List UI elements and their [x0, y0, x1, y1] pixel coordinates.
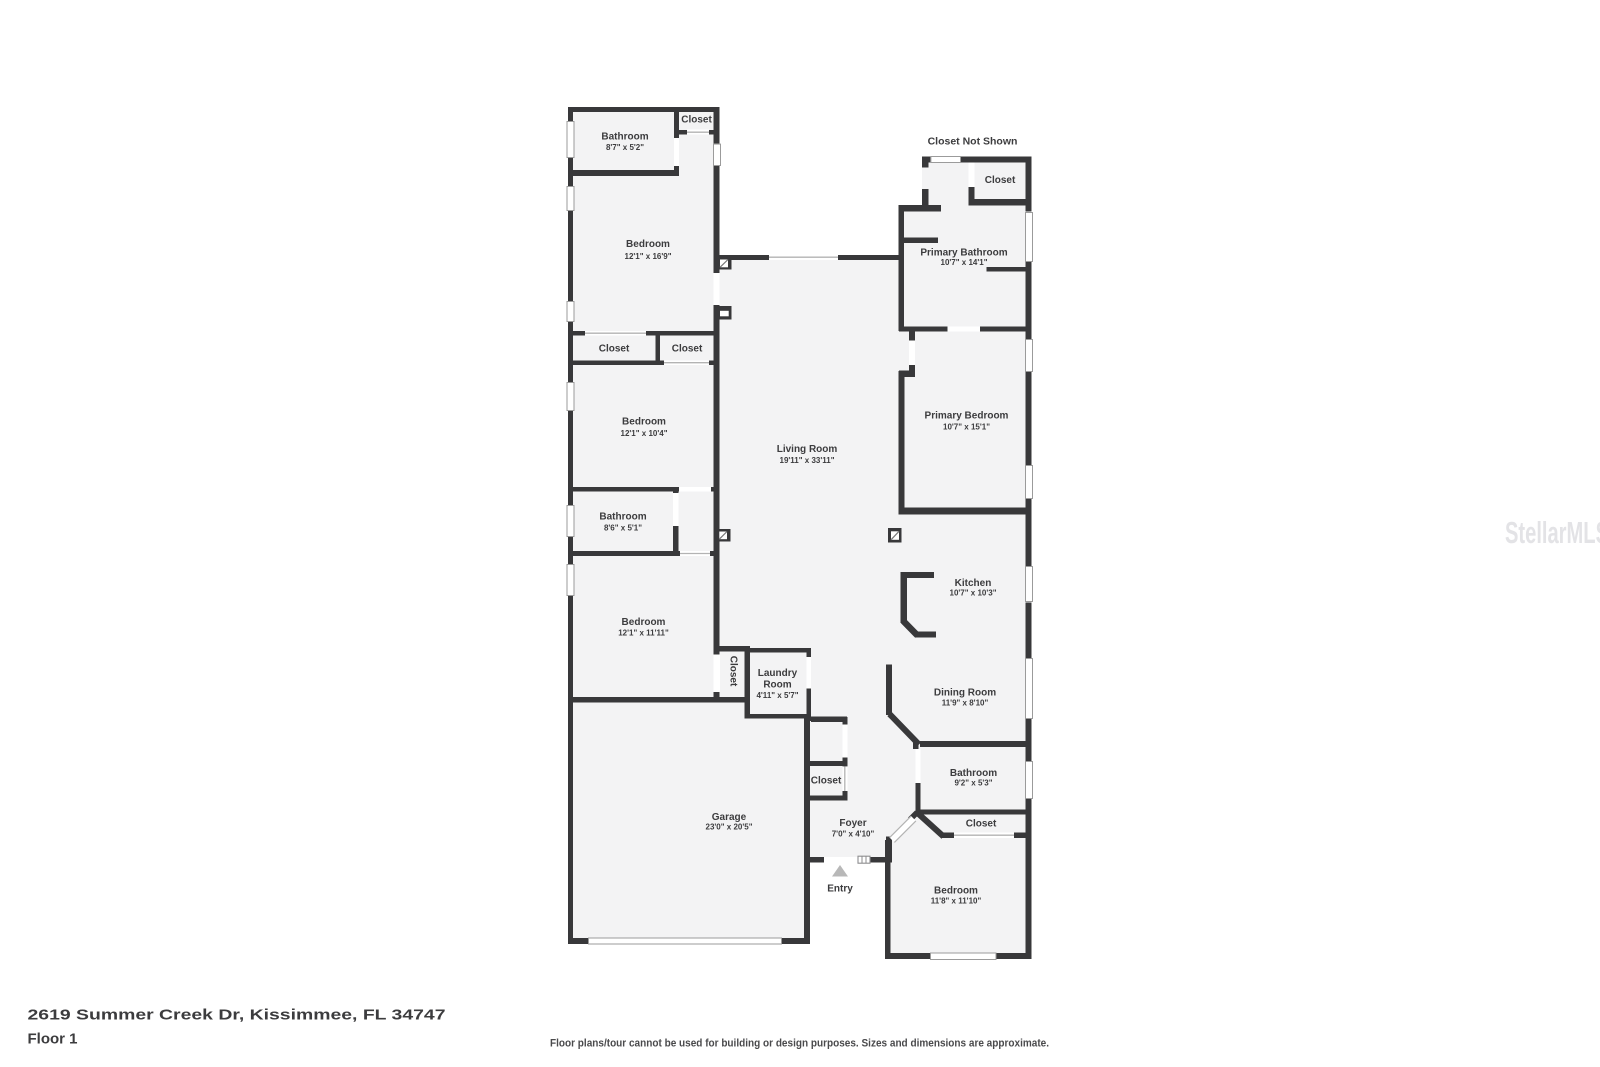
svg-text:Foyer: Foyer: [839, 818, 866, 829]
svg-text:Bathroom: Bathroom: [599, 512, 646, 523]
svg-text:Garage: Garage: [712, 812, 747, 823]
svg-text:Closet Not Shown: Closet Not Shown: [928, 136, 1018, 148]
svg-text:Kitchen: Kitchen: [955, 578, 992, 589]
svg-text:9'2" x 5'3": 9'2" x 5'3": [954, 779, 992, 788]
svg-text:Closet: Closet: [966, 819, 997, 830]
svg-text:Closet: Closet: [728, 656, 739, 687]
svg-text:Bedroom: Bedroom: [622, 617, 666, 628]
svg-text:Floor plans/tour cannot be use: Floor plans/tour cannot be used for buil…: [550, 1038, 1049, 1050]
svg-text:Primary Bathroom: Primary Bathroom: [920, 248, 1007, 259]
svg-text:Room: Room: [763, 680, 791, 691]
svg-text:23'0" x 20'5": 23'0" x 20'5": [706, 823, 753, 832]
svg-text:12'1" x 11'11": 12'1" x 11'11": [618, 629, 669, 638]
svg-text:Closet: Closet: [985, 175, 1016, 186]
svg-text:11'9" x 8'10": 11'9" x 8'10": [942, 699, 989, 708]
svg-text:Bedroom: Bedroom: [626, 239, 670, 250]
svg-text:Floor 1: Floor 1: [28, 1031, 78, 1048]
svg-text:Laundry: Laundry: [758, 668, 798, 679]
svg-text:19'11" x 33'11": 19'11" x 33'11": [780, 456, 835, 465]
svg-text:Bathroom: Bathroom: [950, 768, 997, 779]
svg-text:11'8" x 11'10": 11'8" x 11'10": [931, 897, 982, 906]
svg-text:12'1" x 16'9": 12'1" x 16'9": [625, 252, 672, 261]
svg-text:Primary Bedroom: Primary Bedroom: [925, 411, 1009, 422]
svg-text:12'1" x 10'4": 12'1" x 10'4": [621, 429, 668, 438]
svg-text:8'6" x 5'1": 8'6" x 5'1": [604, 524, 642, 533]
svg-text:Bedroom: Bedroom: [622, 417, 666, 428]
svg-text:8'7" x 5'2": 8'7" x 5'2": [606, 143, 644, 152]
svg-text:10'7" x 14'1": 10'7" x 14'1": [941, 258, 988, 267]
svg-text:7'0" x 4'10": 7'0" x 4'10": [832, 830, 875, 839]
svg-text:4'11" x 5'7": 4'11" x 5'7": [756, 691, 798, 700]
svg-text:Entry: Entry: [827, 884, 853, 895]
svg-text:Closet: Closet: [681, 115, 712, 126]
svg-text:Dining Room: Dining Room: [934, 688, 996, 699]
svg-text:10'7" x 15'1": 10'7" x 15'1": [943, 423, 990, 432]
svg-text:10'7" x 10'3": 10'7" x 10'3": [950, 589, 997, 598]
svg-text:Closet: Closet: [599, 344, 630, 355]
svg-text:StellarMLS: StellarMLS: [1505, 515, 1600, 550]
svg-text:Bathroom: Bathroom: [601, 132, 648, 143]
svg-text:2619 Summer Creek Dr, Kissimme: 2619 Summer Creek Dr, Kissimmee, FL 3474…: [28, 1007, 446, 1024]
svg-text:Closet: Closet: [811, 776, 842, 787]
svg-text:Living Room: Living Room: [777, 444, 838, 455]
svg-text:Closet: Closet: [672, 344, 703, 355]
svg-text:Bedroom: Bedroom: [934, 886, 978, 897]
